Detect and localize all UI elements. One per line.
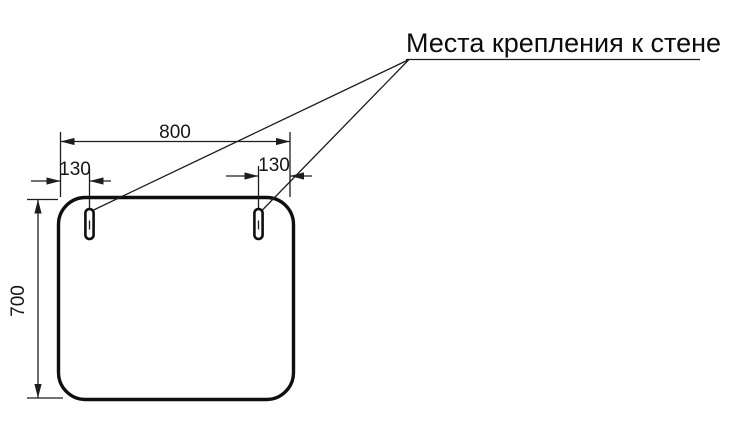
technical-drawing-canvas: 800 130 130 700 Места крепления к стене xyxy=(0,0,734,448)
dim-height-arrow-top xyxy=(34,200,41,214)
dim-width-arrow-left xyxy=(61,138,75,145)
dim-height-arrow-bottom xyxy=(34,384,41,398)
dim-width-arrow-right xyxy=(276,138,290,145)
dim-left-offset-arrow-b xyxy=(90,177,104,184)
dim-height-label: 700 xyxy=(8,285,29,317)
dim-width-label: 800 xyxy=(159,122,191,143)
dim-right-offset-arrow-a xyxy=(245,172,259,179)
leader-line-right-slot xyxy=(261,60,410,213)
dim-right-offset-arrow-b xyxy=(290,172,304,179)
technical-drawing-page: 800 130 130 700 Места крепления к стене xyxy=(0,0,734,448)
leader-line-left-slot xyxy=(92,60,410,212)
dim-left-offset-label: 130 xyxy=(59,159,91,180)
drawing-title: Места крепления к стене xyxy=(406,28,721,58)
dim-right-offset-label: 130 xyxy=(258,155,290,176)
